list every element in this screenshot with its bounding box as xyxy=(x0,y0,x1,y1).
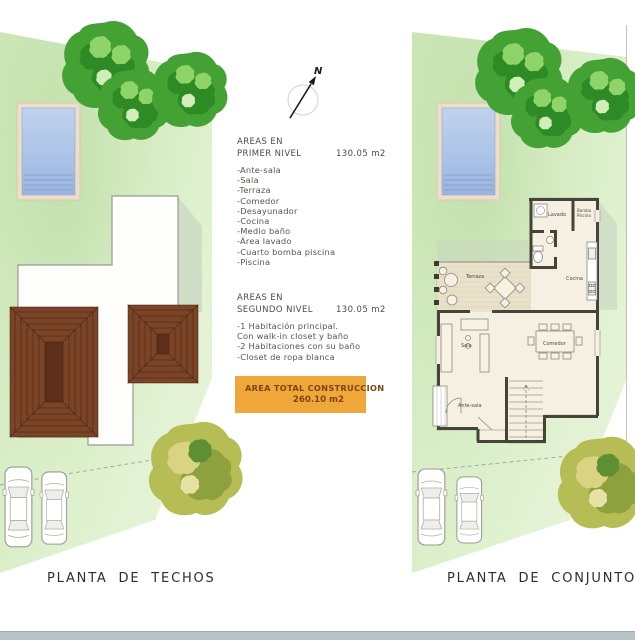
areas-first-items: -Ante-sala -Sala -Terraza -Comedor -Desa… xyxy=(237,165,387,267)
areas-second-level-block: AREAS EN SEGUNDO NIVEL 130.05 m2 -1 Habi… xyxy=(237,292,387,362)
total-construction-label: AREA TOTAL CONSTRUCCION xyxy=(245,383,358,393)
left-car-1 xyxy=(3,467,34,547)
list-item: -Piscina xyxy=(237,257,387,267)
list-item: Con walk-in closet y baño xyxy=(237,331,387,341)
list-item: -Cuarto bomba piscina xyxy=(237,247,387,257)
areas-second-items: -1 Habitación principal. Con walk-in clo… xyxy=(237,321,387,362)
room-label-piscina: Piscina xyxy=(577,213,591,218)
footer-bar xyxy=(0,631,635,640)
areas-first-value: 130.05 m2 xyxy=(336,148,386,160)
list-item: -Sala xyxy=(237,175,387,185)
areas-second-value: 130.05 m2 xyxy=(336,304,386,316)
right-lot: Lavado Bomba Piscina Terraza Cocina Sala… xyxy=(412,25,635,573)
roof-large xyxy=(10,307,98,437)
total-construction-value: 260.10 m2 xyxy=(245,395,358,405)
right-pool xyxy=(437,103,500,200)
north-label: N xyxy=(314,66,323,77)
areas-first-line1: AREAS EN xyxy=(237,136,387,148)
kitchen-counter xyxy=(587,242,597,300)
list-item: -Área lavado xyxy=(237,236,387,246)
tree-icon xyxy=(152,52,227,127)
list-item: -2 Habitaciones con su baño xyxy=(237,341,387,351)
list-item: -Desayunador xyxy=(237,206,387,216)
room-label-comedor: Comedor xyxy=(543,341,567,347)
right-car-2 xyxy=(455,477,484,543)
areas-second-heading: AREAS EN SEGUNDO NIVEL 130.05 m2 xyxy=(237,292,387,316)
list-item: -Terraza xyxy=(237,185,387,195)
room-label-cocina: Cocina xyxy=(566,276,583,282)
north-arrow-icon: N xyxy=(288,66,323,118)
left-car-2 xyxy=(40,472,69,544)
total-construction-box: AREA TOTAL CONSTRUCCION 260.10 m2 xyxy=(235,376,366,413)
room-label-lavado: Lavado xyxy=(548,212,566,218)
right-plan-title: PLANTA DE CONJUNTO xyxy=(447,571,635,586)
room-label-terraza: Terraza xyxy=(465,274,484,280)
list-item: -Medio baño xyxy=(237,226,387,236)
right-car-1 xyxy=(416,469,447,545)
left-pool xyxy=(17,103,80,200)
areas-second-line1: AREAS EN xyxy=(237,292,387,304)
areas-first-heading: AREAS EN PRIMER NIVEL 130.05 m2 xyxy=(237,136,387,160)
washer xyxy=(534,204,547,217)
entry-closet xyxy=(433,386,447,426)
tree-icon xyxy=(149,422,243,515)
list-item: -Ante-sala xyxy=(237,165,387,175)
list-item: -Comedor xyxy=(237,196,387,206)
areas-first-level-block: AREAS EN PRIMER NIVEL 130.05 m2 -Ante-sa… xyxy=(237,136,387,267)
left-lot xyxy=(0,21,243,573)
list-item: -1 Habitación principal. xyxy=(237,321,387,331)
roof-small xyxy=(128,305,198,383)
list-item: -Cocina xyxy=(237,216,387,226)
left-plan-title: PLANTA DE TECHOS xyxy=(47,571,216,586)
room-label-sala: Sala xyxy=(461,343,472,349)
terrace-shadow xyxy=(437,240,531,262)
room-label-antesala: Ante-sala xyxy=(458,403,482,409)
list-item: -Closet de ropa blanca xyxy=(237,352,387,362)
